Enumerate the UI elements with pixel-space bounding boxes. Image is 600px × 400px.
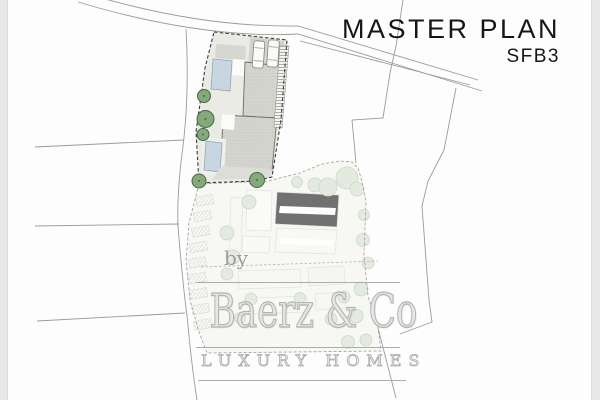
tree [350,182,364,196]
title-block: MASTER PLAN SFB3 [342,14,560,68]
tree-center-dot [198,180,200,182]
tree-center-dot [205,118,207,120]
tree [319,178,337,196]
pool-deck [232,59,246,76]
swimming-pool [204,141,222,172]
upper-plot [192,32,289,188]
left-margin-strip [0,0,8,400]
swimming-pool [211,59,232,91]
parcel-line [35,224,179,226]
building-footprint [229,197,243,253]
tree-center-dot [203,95,205,97]
tree-center-dot [256,179,258,181]
watermark-brand: Baerz & Co [210,282,387,340]
parcel-line [37,313,185,321]
parcel-line [35,140,184,147]
tree [242,195,256,209]
watermark-prefix: by [224,246,248,270]
tree [357,234,370,247]
terrace [215,44,246,61]
watermark-rule [198,380,406,381]
tree [359,210,370,221]
page-title: MASTER PLAN [342,14,560,44]
tree [292,177,303,188]
master-plan-page: MASTER PLAN SFB3 by Baerz & Co LUXURY HO… [0,0,600,400]
parked-car [267,40,280,68]
parked-car [252,41,265,69]
watermark-tagline: LUXURY HOMES [194,351,402,370]
right-margin-strip [591,0,600,400]
courtyard [221,114,235,130]
page-subtitle: SFB3 [342,46,560,68]
watermark-rule [196,347,400,348]
tree [220,226,234,240]
brand-watermark: by Baerz & Co LUXURY HOMES [194,246,402,386]
tree-center-dot [202,134,204,136]
